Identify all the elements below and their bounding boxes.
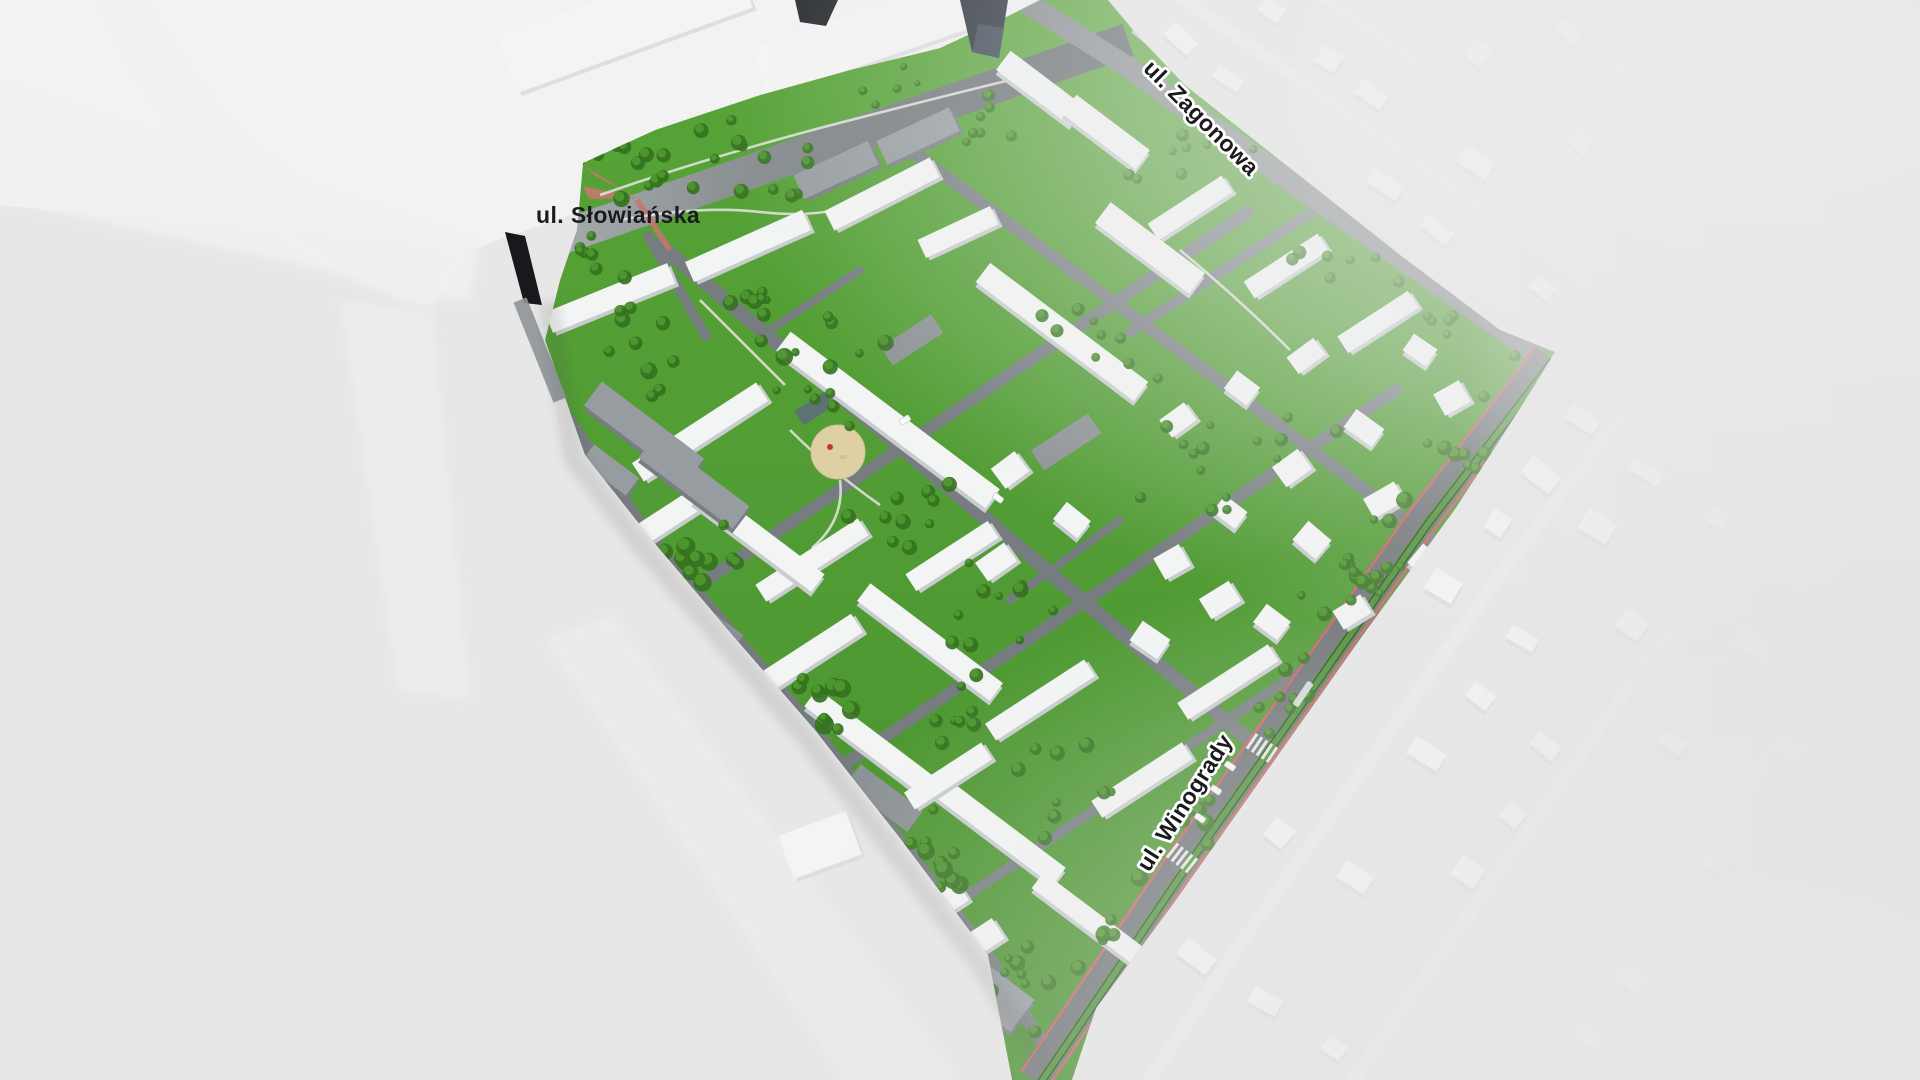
masterplan-stage: ul. Słowiańska ul. Zagonowa ul. Winograd… bbox=[0, 0, 1920, 1080]
fade-overlays bbox=[0, 0, 1920, 1080]
street-label-slowianska: ul. Słowiańska bbox=[536, 202, 700, 228]
masterplan-render: ul. Słowiańska ul. Zagonowa ul. Winograd… bbox=[0, 0, 1920, 1080]
